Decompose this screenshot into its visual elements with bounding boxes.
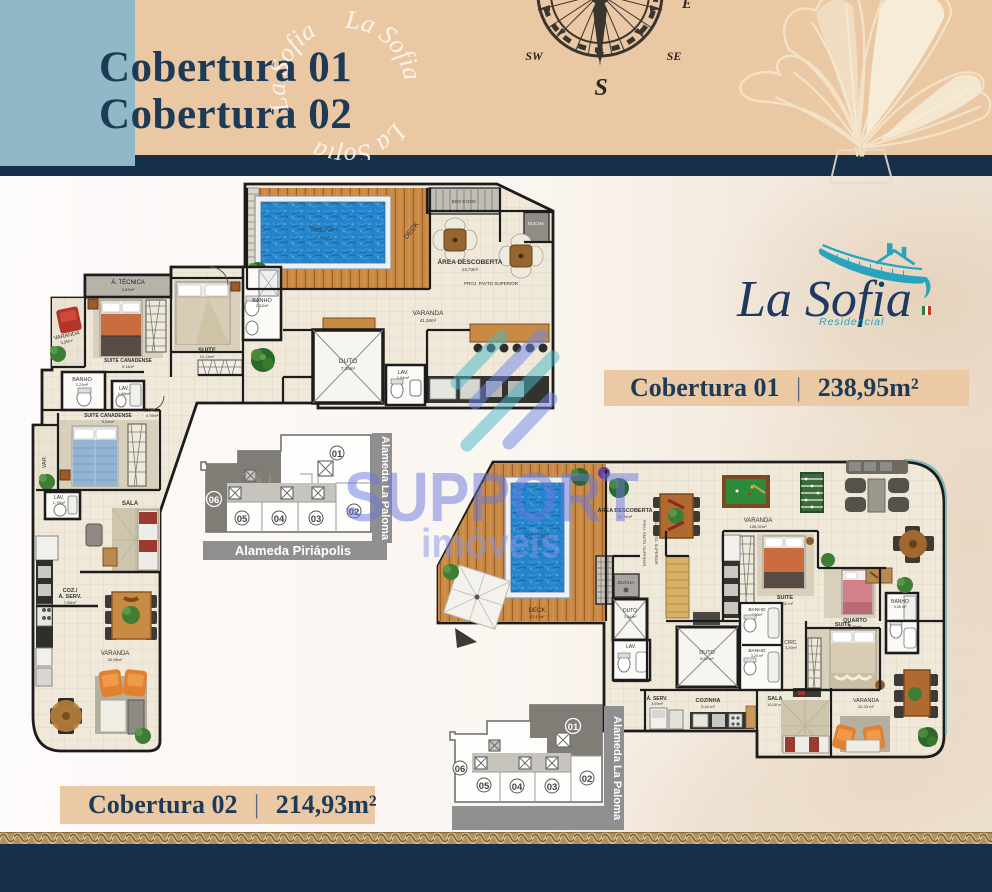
- svg-text:imóveis: imóveis: [421, 520, 561, 566]
- svg-text:Residencial: Residencial: [819, 316, 884, 328]
